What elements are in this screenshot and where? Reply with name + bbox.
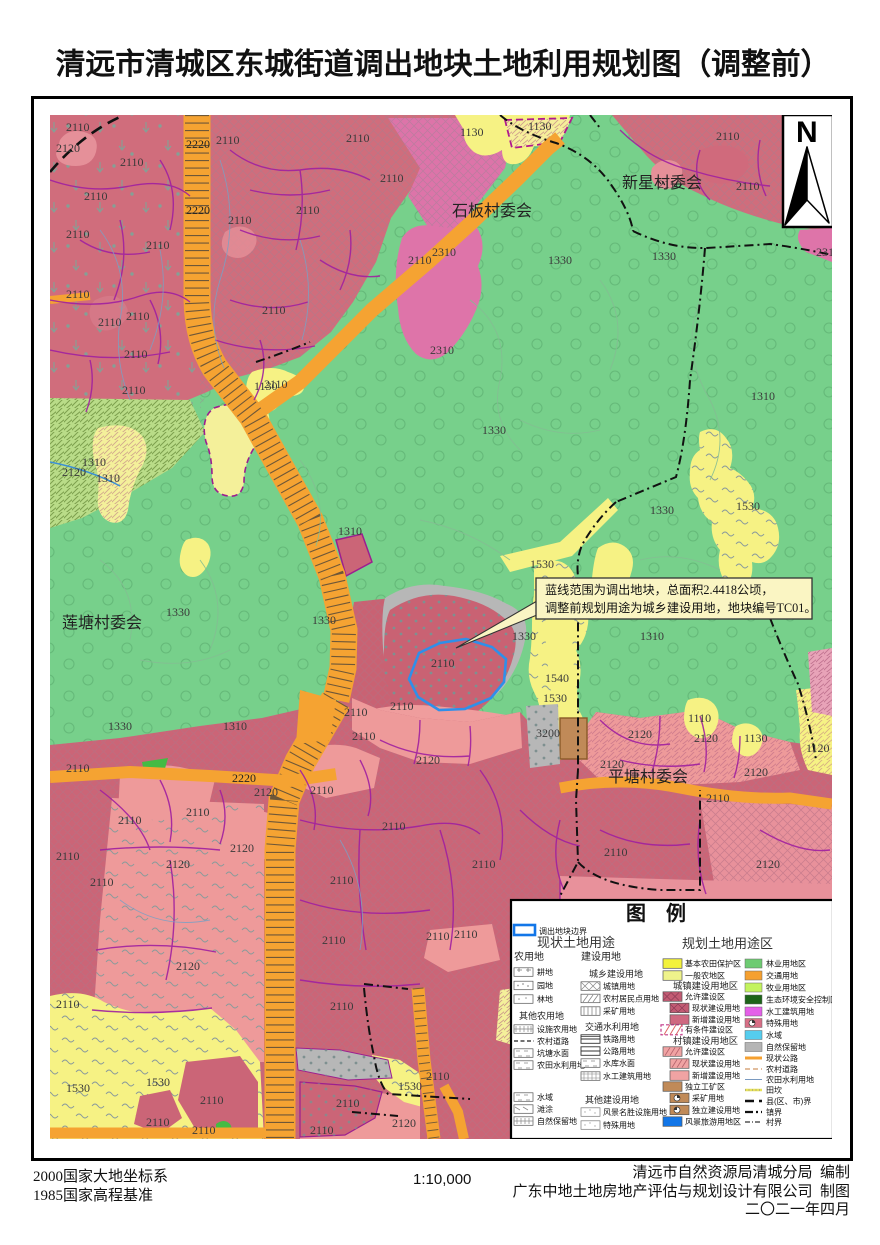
svg-text:石板村委会: 石板村委会 [452,202,532,220]
svg-text:2110: 2110 [146,238,170,252]
svg-text:2110: 2110 [352,729,376,743]
svg-text:现状公路: 现状公路 [766,1053,798,1063]
svg-text:现状土地用途: 现状土地用途 [537,935,615,950]
svg-text:2120: 2120 [756,857,780,871]
svg-text:自然保留地: 自然保留地 [766,1042,806,1052]
svg-text:2110: 2110 [216,133,240,147]
svg-text:基本农田保护区: 基本农田保护区 [685,958,741,968]
svg-text:2110: 2110 [146,1115,170,1129]
svg-text:1530: 1530 [66,1081,90,1095]
svg-text:城镇建设用地区: 城镇建设用地区 [673,980,738,991]
svg-text:2110: 2110 [66,120,90,134]
svg-text:1330: 1330 [108,719,132,733]
svg-text:2120: 2120 [230,841,254,855]
svg-text:其他农用地: 其他农用地 [519,1010,564,1021]
svg-text:2110: 2110 [736,179,760,193]
svg-text:耕地: 耕地 [537,967,553,977]
svg-text:1130: 1130 [254,379,278,393]
svg-text:林地: 林地 [537,994,553,1004]
svg-text:2110: 2110 [192,1123,216,1137]
svg-text:风景名胜设施用地: 风景名胜设施用地 [603,1107,667,1117]
svg-text:农田水利用地: 农田水利用地 [537,1060,585,1070]
svg-text:2110: 2110 [390,699,414,713]
svg-text:1130: 1130 [528,119,552,133]
svg-text:2120: 2120 [56,141,80,155]
svg-text:水库水面: 水库水面 [603,1058,635,1068]
svg-text:1330: 1330 [312,613,336,627]
svg-text:水域: 水域 [537,1092,553,1102]
svg-text:1330: 1330 [166,605,190,619]
svg-text:采矿用地: 采矿用地 [692,1093,724,1103]
svg-text:1310: 1310 [223,719,247,733]
svg-text:滩涂: 滩涂 [537,1104,553,1114]
svg-text:1530: 1530 [736,499,760,513]
svg-text:2110: 2110 [56,997,80,1011]
svg-text:平塘村委会: 平塘村委会 [608,768,688,786]
svg-text:设施农用地: 设施农用地 [537,1024,577,1034]
svg-text:现状建设用地: 现状建设用地 [692,1058,740,1068]
svg-text:2110: 2110 [66,287,90,301]
svg-text:1120: 1120 [806,741,830,755]
svg-text:2220: 2220 [186,203,210,217]
svg-text:农村道路: 农村道路 [766,1064,798,1074]
svg-text:1110: 1110 [688,711,711,725]
svg-text:2110: 2110 [124,347,148,361]
svg-text:1530: 1530 [530,557,554,571]
svg-text:1530: 1530 [146,1075,170,1089]
svg-text:1330: 1330 [652,249,676,263]
svg-text:2110: 2110 [90,875,114,889]
svg-text:3200: 3200 [536,726,560,740]
svg-text:2110: 2110 [408,253,432,267]
svg-text:田坎: 田坎 [766,1085,782,1095]
svg-text:2110: 2110 [118,813,142,827]
svg-text:坑塘水面: 坑塘水面 [537,1048,569,1058]
svg-text:2120: 2120 [254,785,278,799]
svg-text:新增建设用地: 新增建设用地 [692,1070,740,1080]
svg-text:一般农地区: 一般农地区 [685,970,725,980]
svg-text:2110: 2110 [228,213,252,227]
svg-text:牧业用地区: 牧业用地区 [766,982,806,992]
svg-text:交通水利用地: 交通水利用地 [585,1021,639,1032]
svg-text:镇界: 镇界 [766,1107,782,1117]
svg-text:林业用地区: 林业用地区 [766,958,806,968]
svg-text:村界: 村界 [766,1117,782,1127]
svg-text:1540: 1540 [545,671,569,685]
svg-text:2220: 2220 [186,137,210,151]
svg-text:园地: 园地 [537,980,553,990]
svg-text:独立工矿区: 独立工矿区 [685,1081,725,1091]
svg-text:生态环境安全控制区: 生态环境安全控制区 [766,994,832,1004]
svg-text:1330: 1330 [548,253,572,267]
svg-text:1330: 1330 [512,629,536,643]
svg-text:自然保留地: 自然保留地 [537,1116,577,1126]
svg-text:水工建筑用地: 水工建筑用地 [766,1006,814,1016]
svg-text:2110: 2110 [426,1069,450,1083]
svg-text:2110: 2110 [706,791,730,805]
svg-text:1530: 1530 [543,691,567,705]
svg-text:特殊用地: 特殊用地 [603,1120,635,1130]
svg-text:独立建设用地: 独立建设用地 [692,1105,740,1115]
svg-text:农用地: 农用地 [514,950,544,963]
svg-text:2110: 2110 [330,999,354,1013]
svg-text:县(区、市)界: 县(区、市)界 [766,1096,811,1106]
svg-text:1310: 1310 [640,629,664,643]
svg-text:N: N [796,116,818,149]
svg-text:2110: 2110 [84,189,108,203]
svg-text:2110: 2110 [382,819,406,833]
svg-text:1130: 1130 [460,125,484,139]
svg-text:2110: 2110 [344,705,368,719]
svg-text:铁路用地: 铁路用地 [603,1034,635,1044]
svg-text:1310: 1310 [96,471,120,485]
svg-text:2110: 2110 [120,155,144,169]
svg-text:2110: 2110 [330,873,354,887]
svg-text:其他建设用地: 其他建设用地 [585,1094,639,1105]
svg-text:1330: 1330 [482,423,506,437]
svg-text:2110: 2110 [431,656,455,670]
svg-text:2220: 2220 [232,771,256,785]
svg-text:1330: 1330 [650,503,674,517]
svg-text:水工建筑用地: 水工建筑用地 [603,1071,651,1081]
svg-text:农村居民点用地: 农村居民点用地 [603,993,659,1003]
svg-text:2110: 2110 [346,131,370,145]
svg-text:2310: 2310 [816,245,832,259]
svg-text:公路用地: 公路用地 [603,1046,635,1056]
svg-text:2110: 2110 [262,303,286,317]
svg-text:1310: 1310 [338,524,362,538]
svg-text:2310: 2310 [430,343,454,357]
svg-text:2110: 2110 [66,227,90,241]
svg-text:2110: 2110 [336,1096,360,1110]
svg-text:特殊用地: 特殊用地 [766,1018,798,1028]
svg-text:1310: 1310 [751,389,775,403]
svg-text:农村道路: 农村道路 [537,1036,569,1046]
svg-text:2110: 2110 [98,315,122,329]
svg-text:2120: 2120 [694,731,718,745]
svg-text:城镇用地: 城镇用地 [603,981,635,991]
svg-text:2110: 2110 [426,929,450,943]
svg-text:2110: 2110 [322,933,346,947]
svg-text:图 例: 图 例 [626,901,686,925]
svg-text:2110: 2110 [310,783,334,797]
svg-text:2120: 2120 [392,1116,416,1130]
svg-text:调整前规划用途为城乡建设用地，地块编号TC01。: 调整前规划用途为城乡建设用地，地块编号TC01。 [545,600,817,615]
svg-text:现状建设用地: 现状建设用地 [692,1003,740,1013]
svg-text:1310: 1310 [82,455,106,469]
svg-text:农田水利用地: 农田水利用地 [766,1074,814,1084]
svg-text:城乡建设用地: 城乡建设用地 [589,968,643,979]
svg-text:2110: 2110 [472,857,496,871]
svg-text:蓝线范围为调出地块，总面积2.4418公顷，: 蓝线范围为调出地块，总面积2.4418公顷， [545,583,774,597]
svg-text:2310: 2310 [432,245,456,259]
svg-text:采矿用地: 采矿用地 [603,1006,635,1016]
svg-text:2110: 2110 [604,845,628,859]
svg-text:2120: 2120 [744,765,768,779]
svg-text:2110: 2110 [66,761,90,775]
svg-text:2120: 2120 [628,727,652,741]
svg-text:2110: 2110 [310,1123,334,1137]
svg-text:规划土地用途区: 规划土地用途区 [682,936,773,951]
svg-text:2120: 2120 [176,959,200,973]
svg-text:2120: 2120 [416,753,440,767]
svg-text:2110: 2110 [296,203,320,217]
svg-text:新星村委会: 新星村委会 [622,174,702,192]
svg-text:村镇建设用地区: 村镇建设用地区 [673,1035,738,1046]
svg-text:2110: 2110 [56,849,80,863]
svg-text:莲塘村委会: 莲塘村委会 [62,614,142,632]
svg-text:2110: 2110 [380,171,404,185]
svg-text:建设用地: 建设用地 [581,950,621,963]
svg-text:水域: 水域 [766,1030,782,1040]
svg-text:允许建设区: 允许建设区 [685,1046,725,1056]
svg-text:风景旅游用地区: 风景旅游用地区 [685,1116,741,1126]
svg-text:有条件建设区: 有条件建设区 [685,1025,733,1035]
svg-text:2110: 2110 [186,805,210,819]
svg-text:2110: 2110 [200,1093,224,1107]
svg-text:1530: 1530 [398,1079,422,1093]
svg-text:2110: 2110 [454,927,478,941]
svg-text:1130: 1130 [744,731,768,745]
svg-text:2110: 2110 [716,129,740,143]
svg-text:2120: 2120 [166,857,190,871]
svg-text:2110: 2110 [126,309,150,323]
svg-text:新增建设用地: 新增建设用地 [692,1014,740,1024]
svg-text:交通用地: 交通用地 [766,970,798,980]
svg-text:2110: 2110 [122,383,146,397]
svg-text:允许建设区: 允许建设区 [685,991,725,1001]
